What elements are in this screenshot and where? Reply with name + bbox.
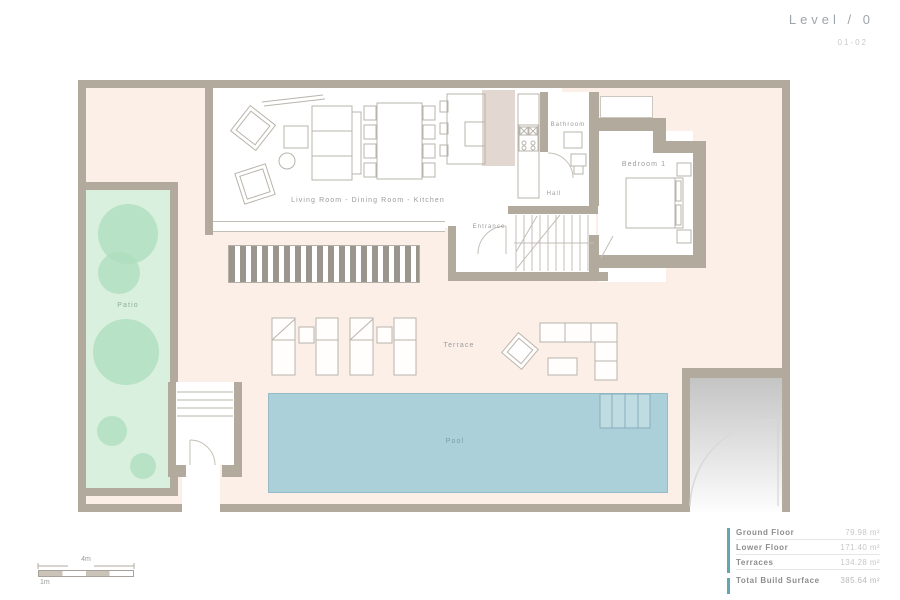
scale-bar-segments — [38, 570, 134, 577]
total-value: 385.64 m² — [840, 576, 880, 585]
table-row: Ground Floor 79.98 m² — [736, 525, 880, 540]
sun-loungers — [272, 318, 416, 375]
kitchen-counter — [518, 94, 539, 198]
bedroom-furniture — [601, 163, 691, 258]
side-entry-steps — [177, 392, 233, 465]
row-value: 134.28 m² — [840, 558, 880, 567]
area-summary-table: Ground Floor 79.98 m² Lower Floor 171.40… — [727, 525, 880, 587]
pool-steps — [600, 394, 650, 428]
accent-bar — [727, 578, 730, 594]
kitchen-island — [440, 94, 485, 164]
floor-plan-sheet: Level / 0 01-02 — [0, 0, 900, 600]
row-label: Lower Floor — [736, 543, 788, 552]
label-patio: Patio — [86, 302, 170, 309]
row-label: Ground Floor — [736, 528, 794, 537]
scale-bar: 4m 1m — [30, 556, 142, 586]
label-pool: Pool — [435, 438, 475, 445]
staircase — [514, 215, 594, 271]
table-total-row: Total Build Surface 385.64 m² — [736, 572, 880, 587]
label-bathroom: Bathroom — [545, 122, 591, 128]
label-terrace: Terrace — [436, 342, 482, 349]
row-value: 171.40 m² — [840, 543, 880, 552]
table-row: Terraces 134.28 m² — [736, 555, 880, 570]
entrance-door-swing — [478, 226, 506, 254]
label-bedroom: Bedroom 1 — [613, 161, 675, 168]
dining-set — [364, 103, 435, 179]
bathroom-fixtures — [548, 132, 586, 178]
label-living: Living Room - Dining Room - Kitchen — [248, 197, 488, 204]
driveway-gate — [690, 420, 778, 506]
total-label: Total Build Surface — [736, 576, 820, 585]
accent-bar — [727, 528, 730, 573]
label-hall: Hall — [543, 191, 565, 197]
row-value: 79.98 m² — [845, 528, 880, 537]
scale-total-label: 4m — [30, 556, 142, 563]
table-row: Lower Floor 171.40 m² — [736, 540, 880, 555]
linework-overlay — [0, 0, 900, 600]
terrace-sofa-set — [502, 323, 617, 380]
living-seating — [231, 95, 361, 204]
label-entrance: Entrance — [466, 224, 512, 230]
row-label: Terraces — [736, 558, 774, 567]
scale-unit-label: 1m — [40, 579, 142, 586]
